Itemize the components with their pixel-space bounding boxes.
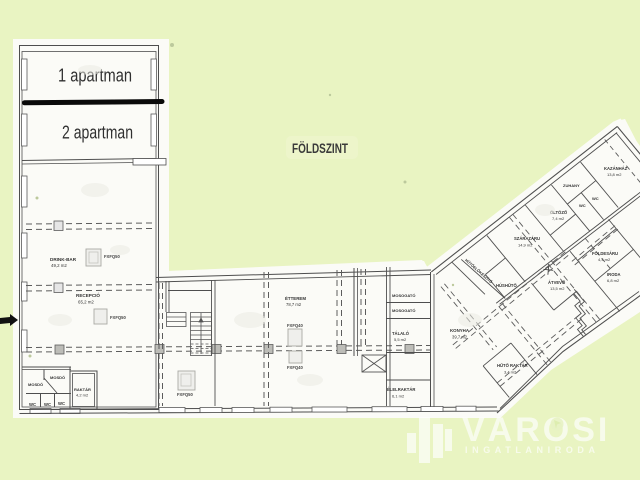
svg-text:RECEPCIÓ: RECEPCIÓ: [76, 291, 100, 298]
svg-text:13,8 m2: 13,8 m2: [607, 172, 622, 177]
svg-text:3,4 m2: 3,4 m2: [504, 370, 517, 375]
svg-text:2 apartman: 2 apartman: [62, 123, 133, 143]
svg-text:RAKTÁR: RAKTÁR: [74, 387, 91, 392]
svg-text:13,5 m2: 13,5 m2: [550, 286, 565, 291]
svg-text:MOSOGATÓ: MOSOGATÓ: [392, 293, 415, 298]
svg-text:6,1 m2: 6,1 m2: [392, 394, 405, 399]
svg-text:ZUHANY: ZUHANY: [563, 183, 580, 188]
svg-text:7,4 m2: 7,4 m2: [552, 216, 565, 221]
svg-text:39,7 m2: 39,7 m2: [452, 335, 468, 340]
svg-text:VÁROSI: VÁROSI: [462, 411, 610, 449]
svg-text:IRODA: IRODA: [607, 272, 621, 277]
svg-text:ÁTVEVŐ: ÁTVEVŐ: [548, 280, 566, 285]
svg-text:DRINK-BAR: DRINK-BAR: [50, 257, 77, 262]
svg-text:65,2 m2: 65,2 m2: [78, 300, 94, 305]
svg-text:6,8 m2: 6,8 m2: [607, 278, 620, 283]
svg-text:78,7 m2: 78,7 m2: [286, 302, 302, 307]
svg-text:MOSOGATÓ: MOSOGATÓ: [392, 308, 415, 313]
svg-text:FÖLDESÁRU: FÖLDESÁRU: [592, 251, 618, 256]
svg-text:4,4 m2: 4,4 m2: [598, 257, 611, 262]
svg-text:4,2 m2: 4,2 m2: [76, 393, 89, 398]
svg-text:HŰTŐ RAKTÁR: HŰTŐ RAKTÁR: [497, 363, 528, 368]
svg-text:WC: WC: [58, 401, 65, 406]
svg-text:FXFQ40: FXFQ40: [287, 365, 303, 370]
svg-text:MOSDÓ: MOSDÓ: [28, 382, 43, 387]
svg-text:WC: WC: [29, 402, 36, 407]
svg-text:TÁLALÓ: TÁLALÓ: [392, 331, 410, 336]
svg-text:FXFQ40: FXFQ40: [287, 323, 303, 328]
svg-text:WC: WC: [44, 402, 51, 407]
svg-text:WC: WC: [579, 203, 586, 208]
svg-text:FÖLDSZINT: FÖLDSZINT: [292, 140, 348, 156]
svg-text:FXFQ50: FXFQ50: [177, 392, 193, 397]
svg-text:HÚSHŰTŐ: HÚSHŰTŐ: [496, 283, 517, 288]
svg-text:ÉLELRAKTÁR: ÉLELRAKTÁR: [387, 387, 415, 392]
svg-text:KAZÁNHÁZ: KAZÁNHÁZ: [604, 166, 628, 171]
svg-text:MOSDÓ: MOSDÓ: [50, 375, 65, 380]
svg-text:SZÁRAZÁRU: SZÁRAZÁRU: [514, 236, 540, 241]
svg-text:KONYHA: KONYHA: [450, 328, 470, 333]
svg-text:INGATLANIRODA: INGATLANIRODA: [465, 445, 600, 455]
svg-text:ÉTTEREM: ÉTTEREM: [285, 296, 306, 301]
svg-text:5,5 m2: 5,5 m2: [394, 337, 407, 342]
svg-text:14,9 m2: 14,9 m2: [518, 243, 533, 248]
svg-text:49,2 m2: 49,2 m2: [51, 263, 67, 268]
svg-text:FXFQ50: FXFQ50: [110, 315, 126, 320]
svg-text:WC: WC: [592, 196, 599, 201]
